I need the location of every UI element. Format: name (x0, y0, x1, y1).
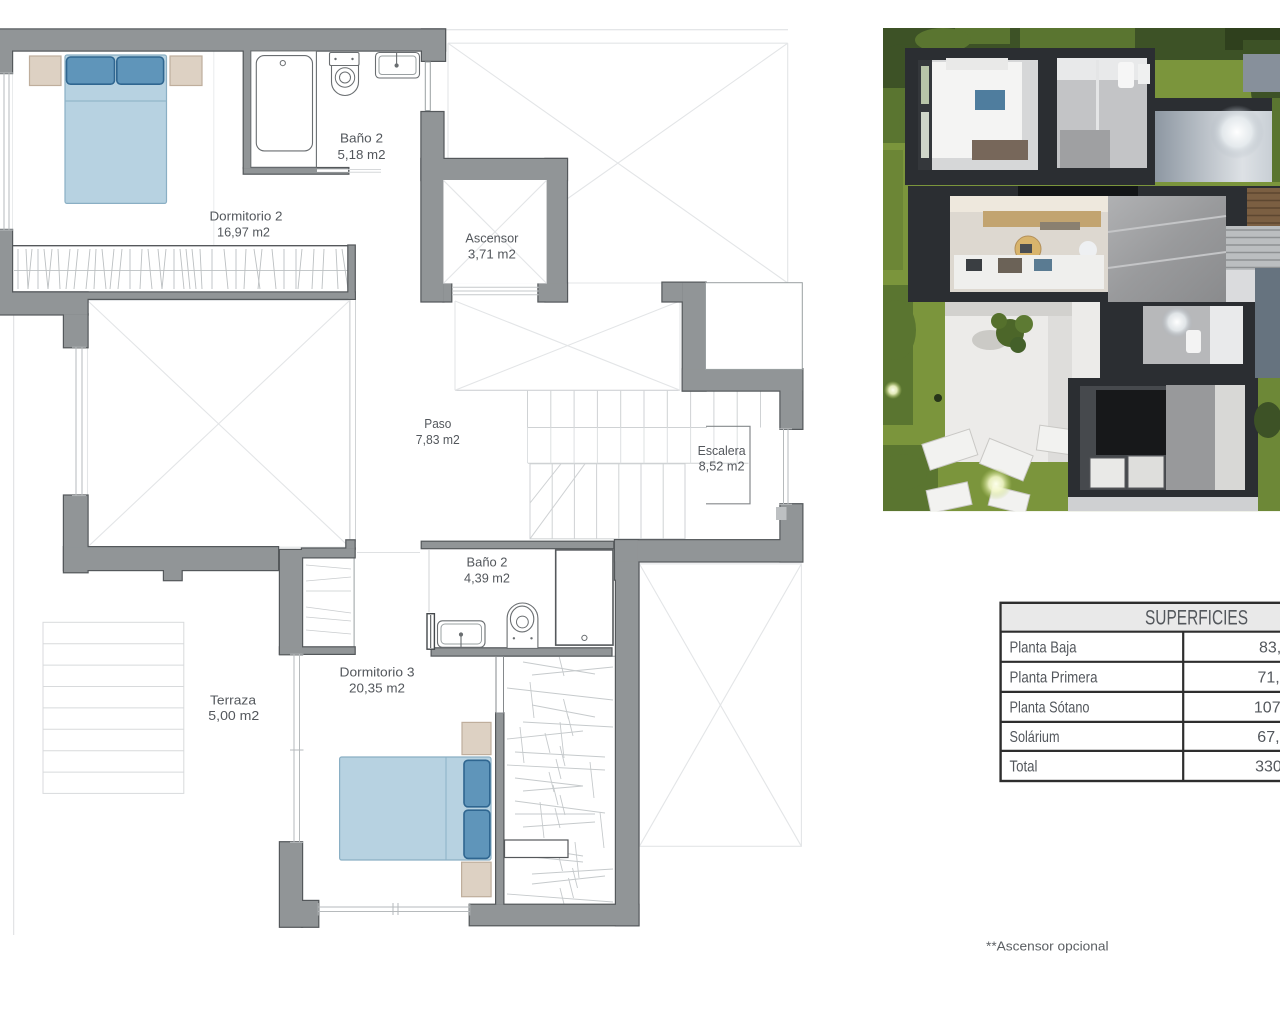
svg-text:83,8: 83,8 (1259, 640, 1280, 657)
svg-text:**Ascensor opcional: **Ascensor opcional (986, 939, 1109, 954)
svg-text:8,52 m2: 8,52 m2 (699, 459, 745, 474)
svg-text:16,97 m2: 16,97 m2 (217, 225, 270, 240)
svg-text:Solárium: Solárium (1010, 729, 1060, 746)
svg-text:SUPERFICIES: SUPERFICIES (1145, 607, 1248, 630)
svg-text:Escalera: Escalera (698, 443, 747, 458)
svg-text:Planta Sótano: Planta Sótano (1010, 700, 1090, 717)
svg-text:Terraza: Terraza (210, 693, 257, 708)
svg-text:3,71 m2: 3,71 m2 (468, 246, 516, 261)
svg-text:5,18 m2: 5,18 m2 (338, 147, 386, 162)
svg-text:20,35 m2: 20,35 m2 (349, 681, 405, 696)
svg-text:Ascensor: Ascensor (465, 231, 519, 246)
svg-text:107,: 107, (1254, 700, 1280, 717)
svg-text:Baño 2: Baño 2 (467, 555, 508, 570)
svg-text:330: 330 (1255, 759, 1280, 776)
svg-text:Dormitorio 3: Dormitorio 3 (340, 665, 415, 680)
svg-text:5,00 m2: 5,00 m2 (208, 708, 259, 723)
svg-text:Total: Total (1010, 759, 1038, 776)
svg-text:Paso: Paso (424, 416, 451, 431)
svg-text:4,39 m2: 4,39 m2 (464, 571, 510, 586)
svg-text:Planta Baja: Planta Baja (1010, 640, 1077, 657)
svg-text:Baño 2: Baño 2 (340, 131, 383, 146)
svg-text:67,8: 67,8 (1257, 729, 1280, 746)
svg-text:71,9: 71,9 (1258, 670, 1280, 687)
svg-text:Dormitorio 2: Dormitorio 2 (210, 209, 283, 224)
svg-text:Planta Primera: Planta Primera (1010, 670, 1098, 687)
svg-text:7,83 m2: 7,83 m2 (416, 432, 460, 447)
